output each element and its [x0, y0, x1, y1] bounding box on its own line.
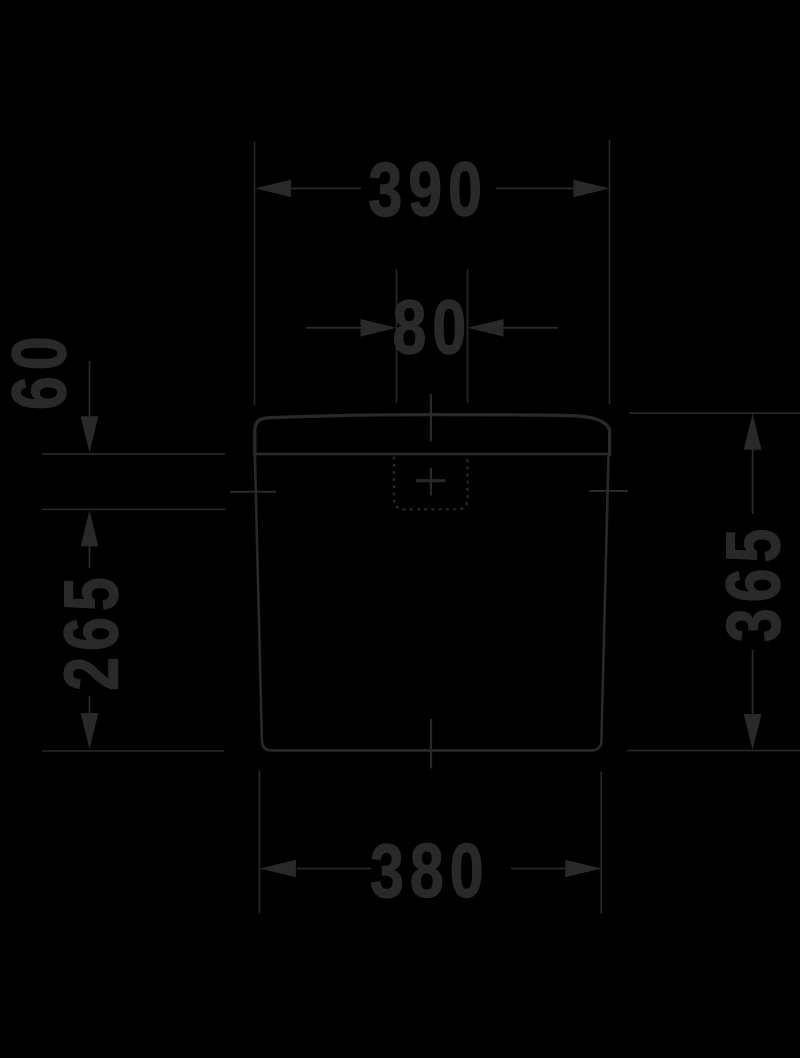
svg-text:60: 60: [0, 330, 82, 410]
svg-text:365: 365: [711, 523, 796, 642]
svg-text:80: 80: [393, 285, 473, 370]
svg-text:380: 380: [370, 829, 489, 914]
svg-text:265: 265: [49, 571, 134, 690]
svg-text:390: 390: [368, 147, 487, 232]
